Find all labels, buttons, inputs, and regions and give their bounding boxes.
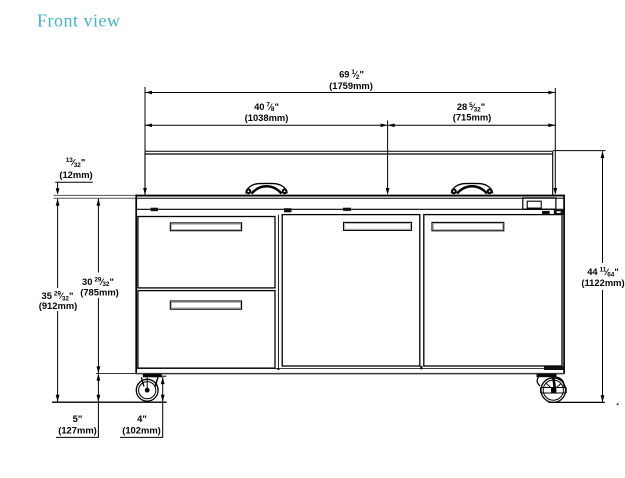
svg-text:(127mm): (127mm) <box>58 425 97 436</box>
svg-text:5": 5" <box>73 413 83 424</box>
svg-text:13⁄32": 13⁄32" <box>66 157 86 169</box>
svg-text:(1759mm): (1759mm) <box>329 80 373 91</box>
svg-text:(912mm): (912mm) <box>39 300 78 311</box>
svg-text:(12mm): (12mm) <box>59 169 92 180</box>
svg-text:(715mm): (715mm) <box>453 111 492 122</box>
svg-text:(102mm): (102mm) <box>122 425 161 436</box>
svg-text:(785mm): (785mm) <box>80 287 119 298</box>
svg-text:(1038mm): (1038mm) <box>245 112 289 123</box>
svg-text:Front view: Front view <box>37 11 121 31</box>
svg-text:(1122mm): (1122mm) <box>581 277 624 288</box>
svg-text:4": 4" <box>137 413 147 424</box>
